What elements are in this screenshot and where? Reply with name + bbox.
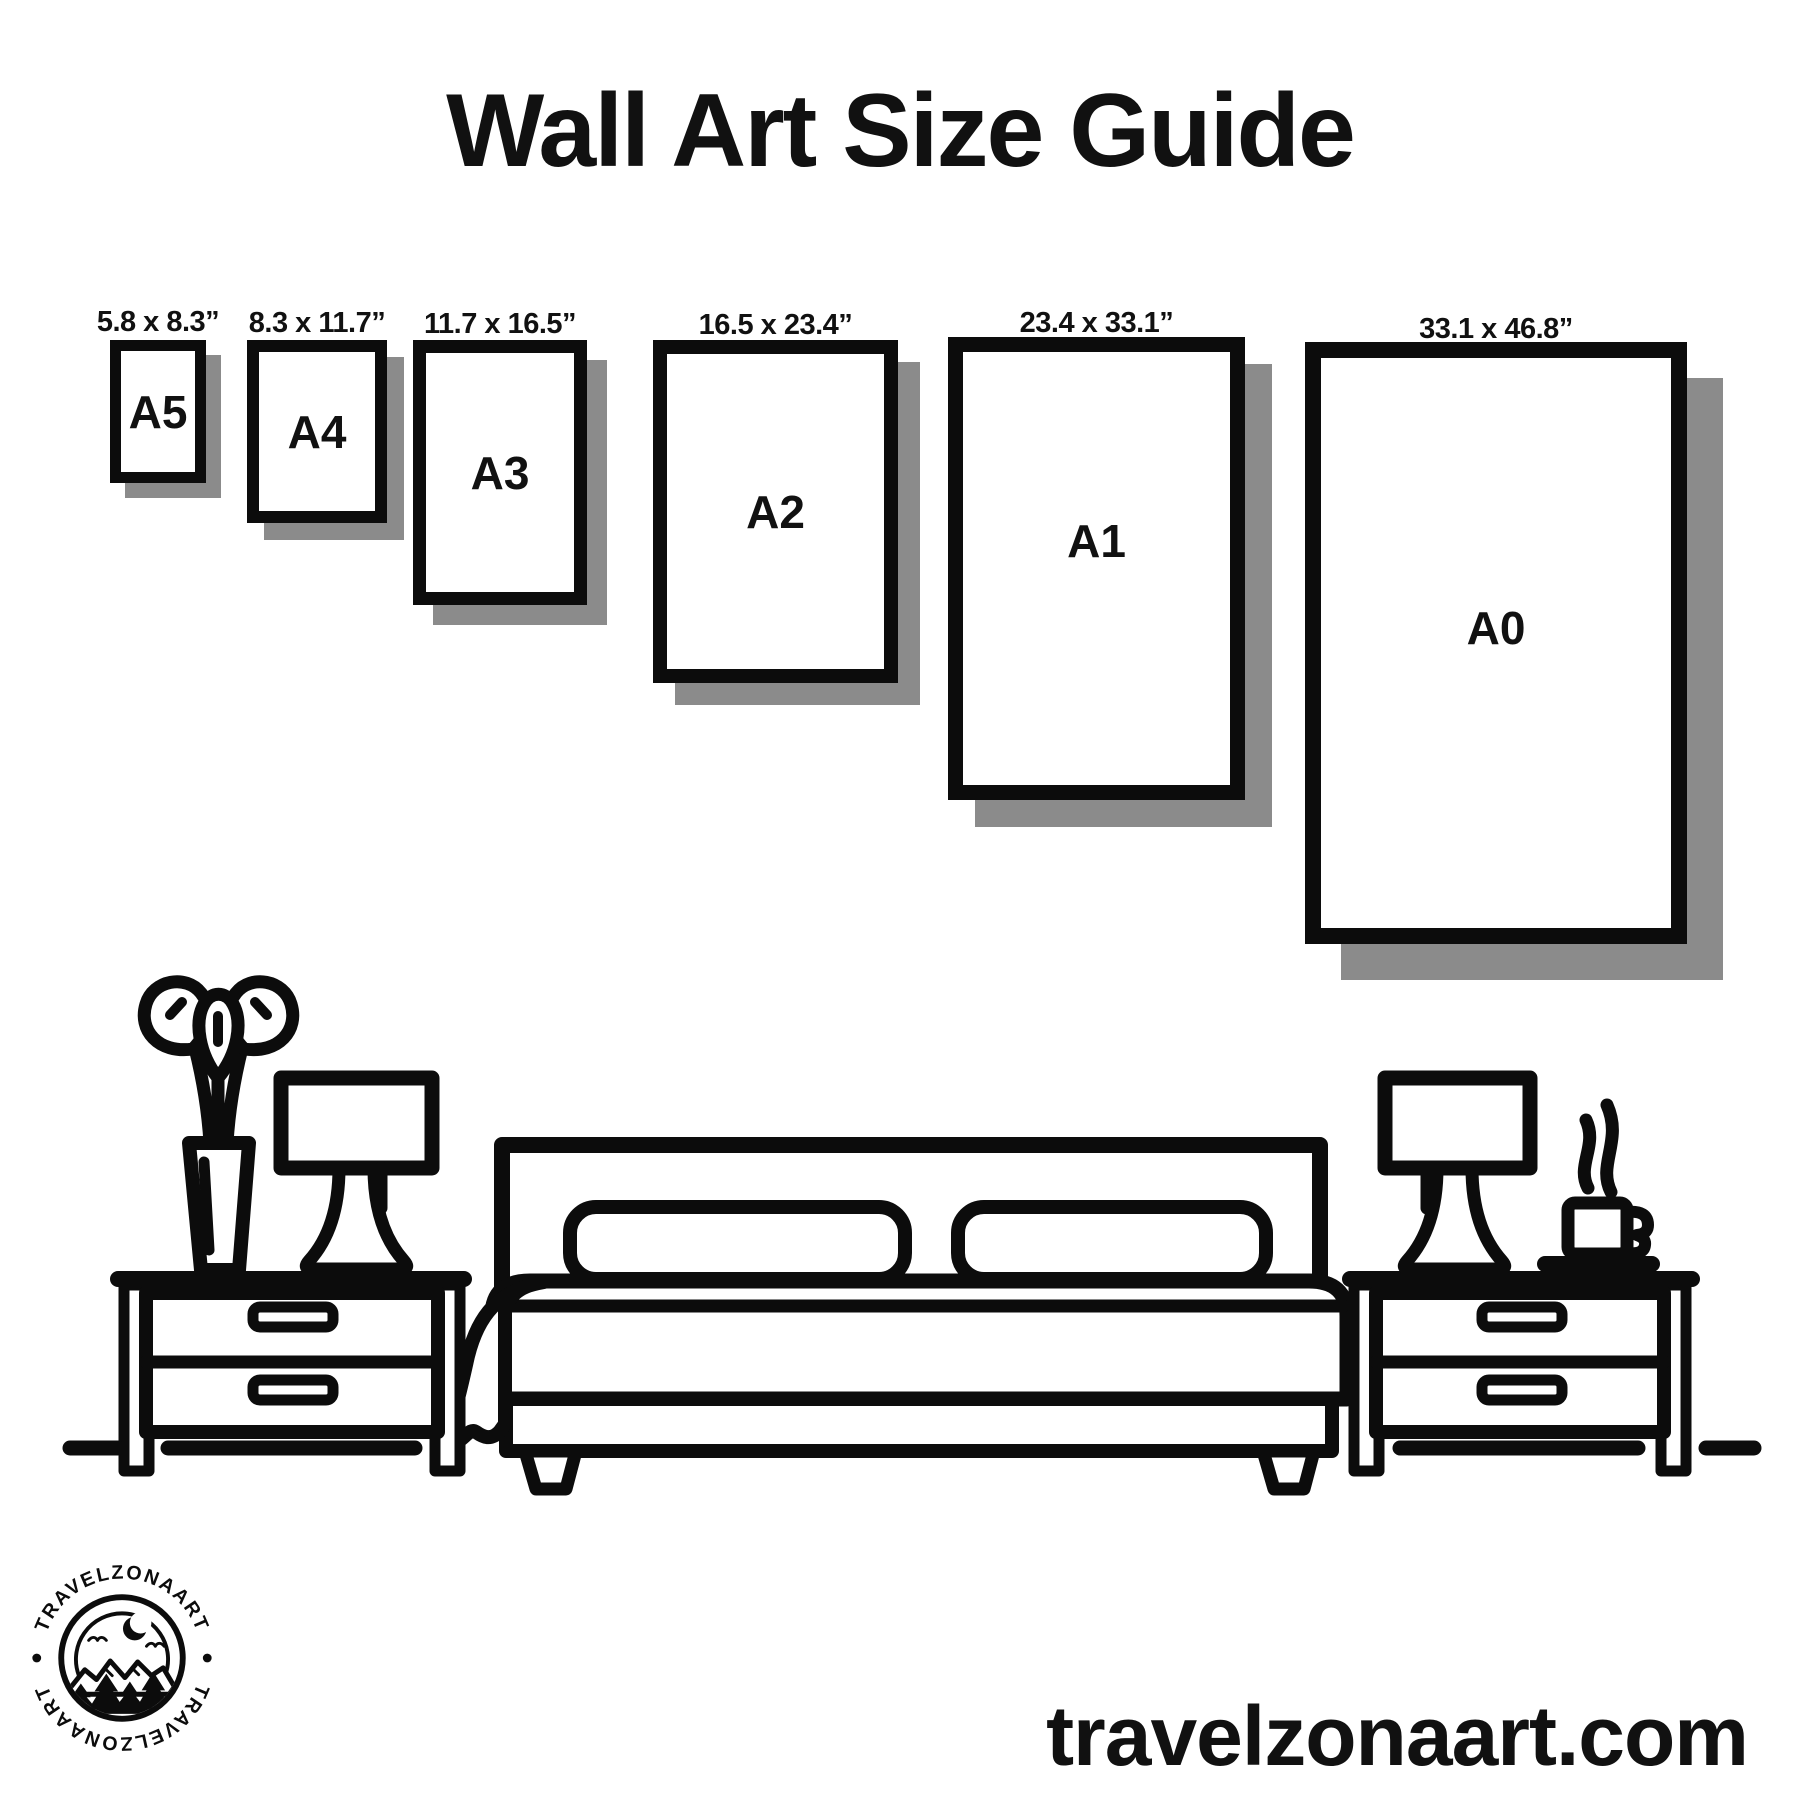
frame-a0-label: A0 xyxy=(1467,601,1526,655)
drawer-handle xyxy=(253,1380,333,1400)
frame-a0: 33.1 x 46.8” A0 xyxy=(1305,342,1687,944)
frame-a1-label: A1 xyxy=(1067,514,1126,568)
logo-moon-cutout xyxy=(130,1612,152,1634)
table-lamp-right-icon xyxy=(1385,1078,1530,1269)
frame-a2: 16.5 x 23.4” A2 xyxy=(653,340,898,683)
logo-separator-dot xyxy=(203,1654,212,1663)
logo-separator-dot xyxy=(32,1654,41,1663)
frame-a0-dimensions: 33.1 x 46.8” xyxy=(1419,313,1573,346)
frame-a1-dimensions: 23.4 x 33.1” xyxy=(1020,307,1174,340)
frame-a5-dimensions: 5.8 x 8.3” xyxy=(97,306,219,339)
nightstand-left xyxy=(118,1279,464,1471)
drawer-handle xyxy=(253,1307,333,1327)
bedroom-scene-illustration xyxy=(0,940,1800,1500)
frame-a4: 8.3 x 11.7” A4 xyxy=(247,340,387,523)
logo-bird-icon xyxy=(147,1643,165,1646)
frame-a3: 11.7 x 16.5” A3 xyxy=(413,340,587,605)
table-lamp-left-icon xyxy=(281,1078,432,1269)
nightstand-right xyxy=(1350,1279,1692,1471)
frame-a3-dimensions: 11.7 x 16.5” xyxy=(424,308,576,341)
lamp-stem xyxy=(1404,1168,1504,1269)
frame-a2-label: A2 xyxy=(746,485,805,539)
steam-icon xyxy=(1584,1120,1589,1188)
cup-body xyxy=(1568,1203,1627,1254)
frame-a2-dimensions: 16.5 x 23.4” xyxy=(699,309,853,342)
coffee-cup-icon xyxy=(1545,1105,1652,1264)
drawer-handle xyxy=(1482,1380,1562,1400)
page-title: Wall Art Size Guide xyxy=(0,72,1800,191)
bed-icon xyxy=(443,1145,1347,1489)
lamp-shade xyxy=(281,1078,432,1168)
mattress xyxy=(492,1281,1347,1399)
frame-a4-label: A4 xyxy=(288,405,347,459)
lamp-stem xyxy=(306,1168,406,1269)
frame-a3-label: A3 xyxy=(471,446,530,500)
steam-icon xyxy=(1607,1105,1613,1192)
bed-base xyxy=(506,1399,1332,1451)
logo-bird-icon xyxy=(89,1637,107,1640)
frame-a5: 5.8 x 8.3” A5 xyxy=(110,340,206,483)
bed-leg-left xyxy=(525,1451,576,1489)
frame-a5-label: A5 xyxy=(129,385,188,439)
plant-vase xyxy=(189,1143,249,1270)
website-url: travelzonaart.com xyxy=(1046,1688,1748,1785)
brand-logo-badge: TRAVELZONAART TRAVELZONAART xyxy=(24,1560,220,1756)
pillow-right xyxy=(958,1207,1266,1279)
plant-icon xyxy=(144,982,293,1270)
wall-art-size-guide-poster: Wall Art Size Guide 5.8 x 8.3” A5 8.3 x … xyxy=(0,0,1800,1800)
vase-highlight xyxy=(204,1162,209,1250)
frame-a4-dimensions: 8.3 x 11.7” xyxy=(249,307,385,340)
lamp-shade xyxy=(1385,1078,1530,1168)
pillow-left xyxy=(570,1207,905,1279)
frame-a1: 23.4 x 33.1” A1 xyxy=(948,337,1245,800)
drawer-handle xyxy=(1482,1307,1562,1327)
bed-leg-right xyxy=(1263,1451,1314,1489)
